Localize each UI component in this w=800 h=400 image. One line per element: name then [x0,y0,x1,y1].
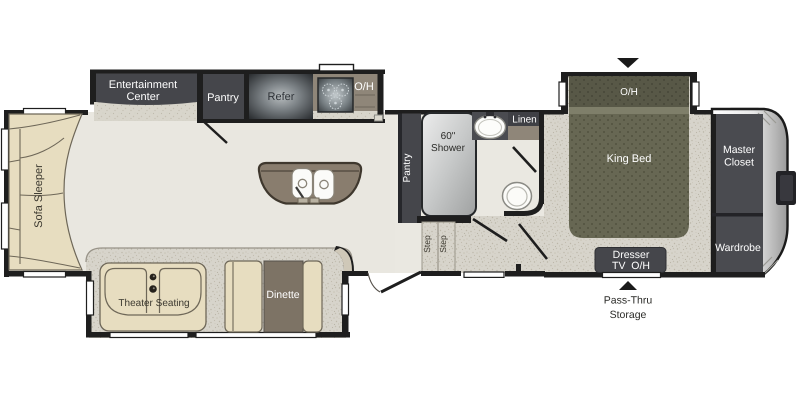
svg-text:Pantry: Pantry [207,92,239,104]
svg-text:60": 60" [441,131,456,142]
svg-text:Step: Step [422,235,432,253]
svg-text:Theater Seating: Theater Seating [118,298,189,309]
svg-text:Center: Center [126,91,159,103]
svg-text:Dinette: Dinette [266,289,299,301]
svg-text:TV O/H: TV O/H [612,260,650,272]
svg-text:Linen: Linen [512,115,536,126]
svg-text:Wardrobe: Wardrobe [715,242,761,254]
svg-text:Master: Master [723,144,756,156]
svg-text:Pantry: Pantry [402,154,413,183]
svg-text:Entertainment: Entertainment [109,79,177,91]
svg-text:Step: Step [438,235,448,253]
svg-text:Closet: Closet [724,157,754,169]
svg-text:Sofa Sleeper: Sofa Sleeper [33,164,45,228]
svg-text:Refer: Refer [268,91,295,103]
svg-text:O/H: O/H [354,81,374,93]
svg-text:Pass-Thru: Pass-Thru [604,295,653,307]
svg-text:King Bed: King Bed [607,153,652,165]
svg-text:O/H: O/H [620,87,638,98]
svg-text:Shower: Shower [431,143,466,154]
svg-text:Storage: Storage [610,309,647,321]
